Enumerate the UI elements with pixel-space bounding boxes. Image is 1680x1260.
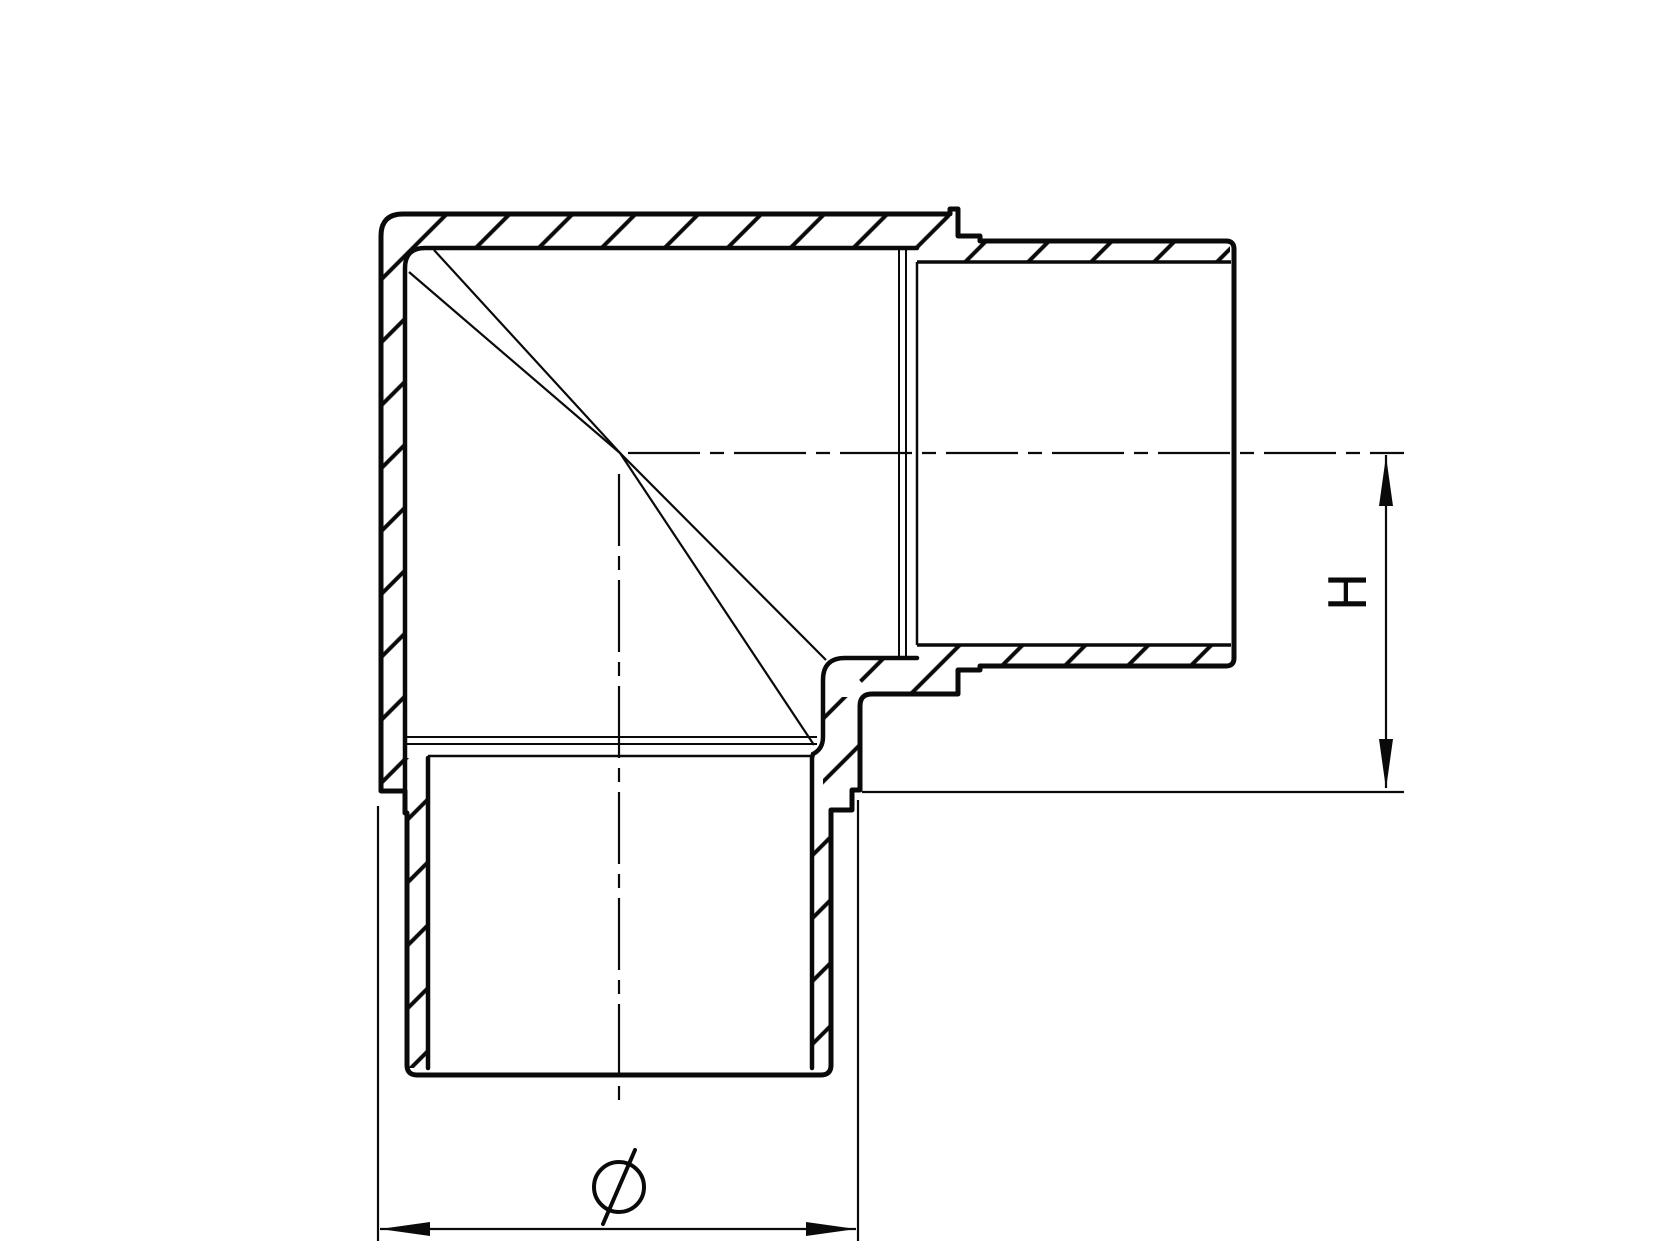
hatch-vertical-spigot-right	[812, 812, 831, 1068]
drawing-canvas: Ø	[0, 0, 1680, 1260]
socket-lines-vertical-arm	[406, 737, 817, 744]
hatch-top-shoulder-step	[958, 236, 980, 262]
diameter-arrow-right-icon	[806, 1222, 856, 1236]
centerlines	[619, 453, 1404, 1103]
diameter-symbol-icon	[594, 1150, 644, 1224]
diameter-arrow-left-icon	[380, 1222, 430, 1236]
hatch-right-spigot-bottom	[980, 645, 1230, 666]
miter-seam-lower	[409, 272, 814, 745]
h-arrow-down-icon	[1379, 739, 1393, 789]
elbow-fitting-section-drawing: H	[0, 0, 1680, 1260]
miter-seam-upper	[434, 250, 826, 660]
hatch-vertical-body-right	[823, 697, 860, 788]
hatch-top-left-wall	[381, 214, 950, 791]
socket-step-lines	[406, 250, 917, 756]
miter-seam-lines	[409, 250, 826, 745]
h-arrow-up-icon	[1379, 456, 1393, 506]
hatch-right-spigot-top	[980, 241, 1230, 262]
bore-outline	[405, 248, 917, 1068]
section-hatching	[381, 214, 1230, 1068]
dimension-h: H	[862, 455, 1404, 792]
h-dimension-label: H	[1319, 572, 1379, 611]
